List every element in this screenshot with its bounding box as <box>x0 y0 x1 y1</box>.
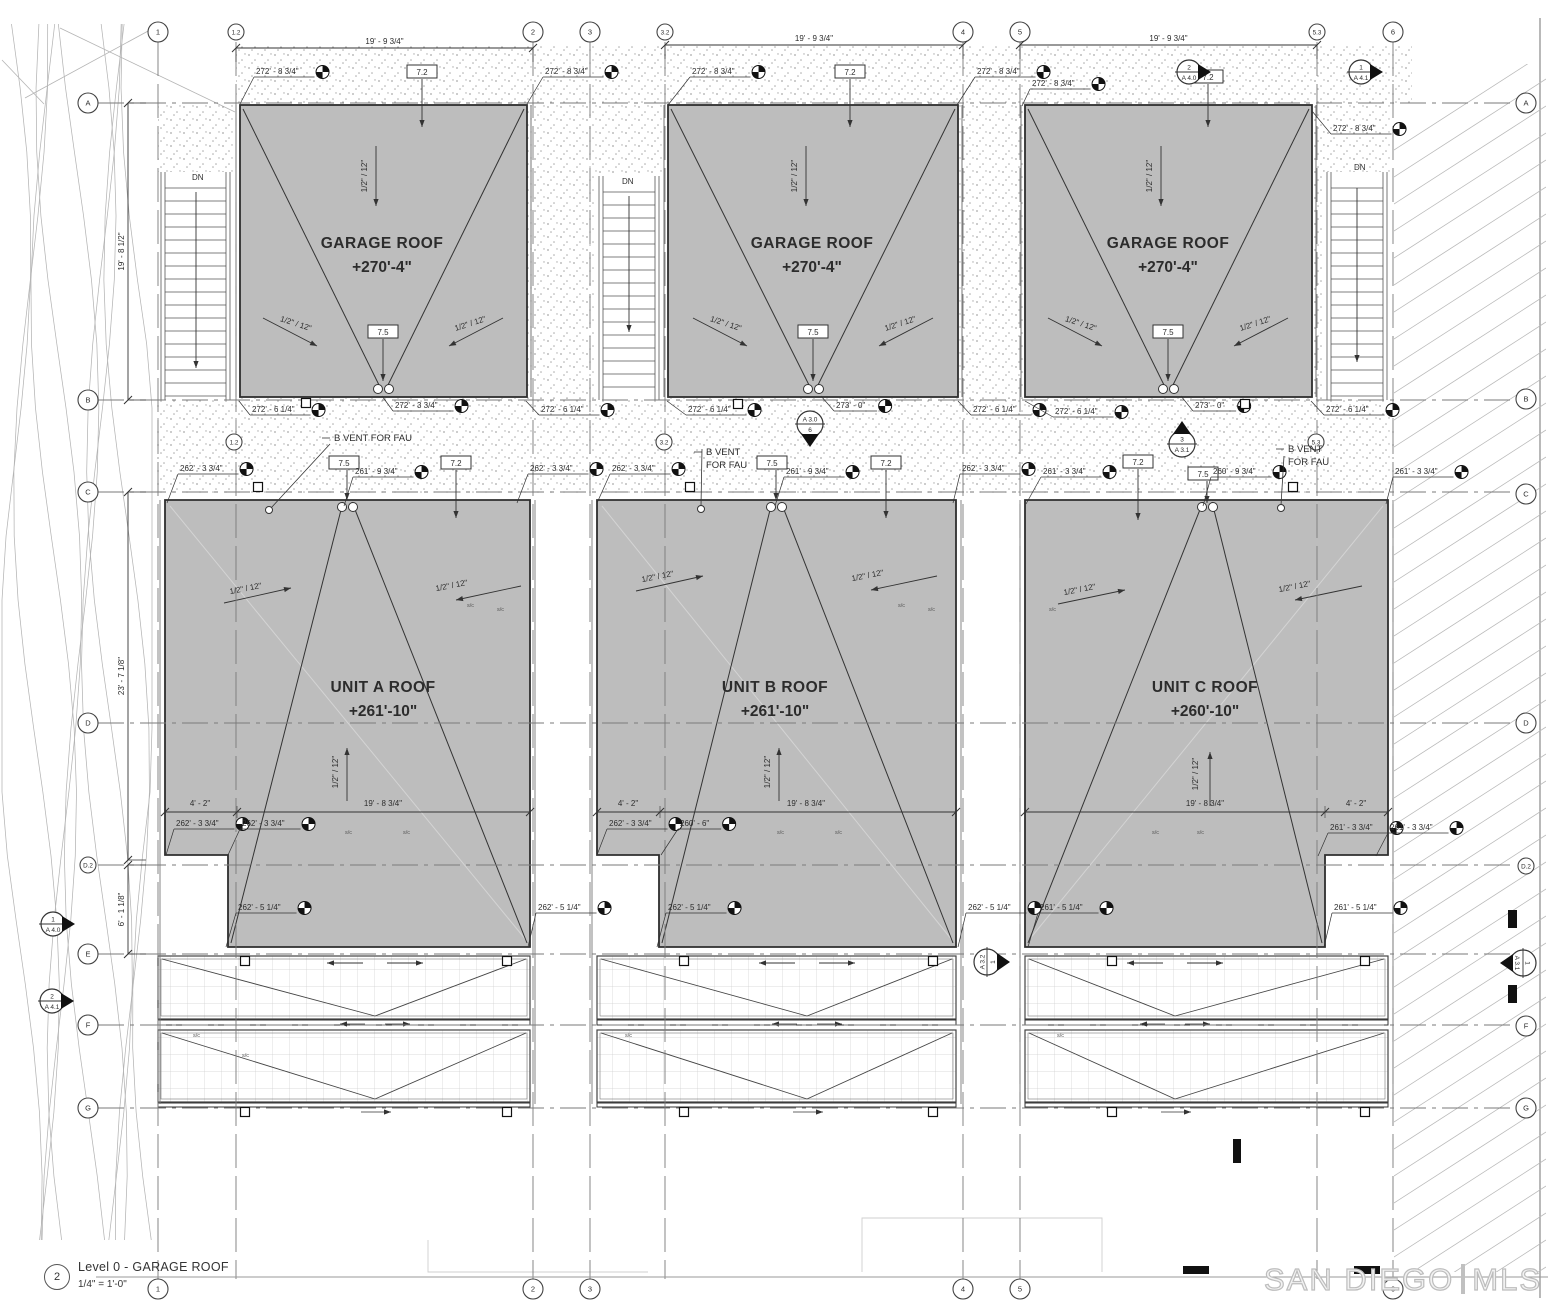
roof-vent <box>767 503 776 512</box>
watermark-right: MLS <box>1472 1262 1542 1297</box>
marker-number: 2 <box>50 994 54 1001</box>
elevation-label: 273' - 0" <box>836 401 865 410</box>
elevation-label: 272' - 3 3/4" <box>395 401 438 410</box>
deck-area <box>1025 956 1388 1019</box>
watermark: SAN DIEGOMLS <box>1264 1262 1542 1298</box>
roof-vent <box>778 503 787 512</box>
roof-box <box>302 399 311 408</box>
elevation-label: 273' - 0" <box>1195 401 1224 410</box>
garage-roof-name: GARAGE ROOF <box>1107 235 1230 252</box>
stipple-area <box>1322 103 1390 172</box>
stipple-area <box>1312 103 1324 400</box>
deck-unit-a <box>158 956 530 1115</box>
stair-dn-label: DN <box>622 177 634 186</box>
line <box>1394 1132 1546 1230</box>
elevation-label: 261' - 9 3/4" <box>355 467 398 476</box>
line <box>1394 565 1546 663</box>
dimension-text: 4' - 2" <box>618 799 639 808</box>
grid-bubble-label: 3 <box>588 1285 592 1294</box>
unit-roof-elevation: +261'-10" <box>349 703 417 720</box>
garage-roof-elevation: +270'-4" <box>1138 259 1198 276</box>
elevation-label: 262' - 5 1/4" <box>968 903 1011 912</box>
arrow-head <box>1184 1109 1191 1114</box>
roof-box <box>1361 1108 1370 1117</box>
grid-bubble-label: 3 <box>588 28 592 37</box>
elevation-label: 262' - 3 3/4" <box>530 464 573 473</box>
stipple-area <box>596 103 662 176</box>
line <box>1394 862 1546 960</box>
keynote-tag: 7.2 <box>880 459 892 468</box>
title-block: 2 Level 0 - GARAGE ROOF 1/4" = 1'-0" <box>44 1260 229 1290</box>
elevation-label: 272' - 8 3/4" <box>1333 124 1376 133</box>
grid-bubble-label: 1.2 <box>232 29 241 36</box>
elevation-label: 272' - 6 1/4" <box>973 405 1016 414</box>
unit-roof-name: UNIT A ROOF <box>330 679 435 696</box>
deck-unit-c <box>1025 956 1388 1115</box>
marker-number: 2 <box>1187 65 1191 72</box>
dimension-text: 19' - 9 3/4" <box>365 37 403 46</box>
elevation-label: 260' - 9 3/4" <box>1213 467 1256 476</box>
roof-box <box>680 957 689 966</box>
stair-dn-label: DN <box>1354 163 1366 172</box>
elevation-label: 262' - 3 3/4" <box>242 819 285 828</box>
dimension-text: 4' - 2" <box>190 799 211 808</box>
marker-number: 3 <box>1180 437 1184 444</box>
line <box>1394 754 1546 852</box>
line <box>1394 430 1546 528</box>
line <box>1394 538 1546 636</box>
dimension-text: 19' - 8 3/4" <box>364 799 402 808</box>
elevation-label: 261' - 3 3/4" <box>1330 823 1373 832</box>
roof-vent <box>338 503 347 512</box>
title-text: Level 0 - GARAGE ROOF 1/4" = 1'-0" <box>78 1260 229 1290</box>
grid-bubble-label: F <box>86 1021 91 1030</box>
marker-arrow <box>62 916 75 932</box>
keynote-tag: 7.2 <box>844 68 856 77</box>
grid-bubble-label: D.2 <box>83 862 93 869</box>
line <box>1394 835 1546 933</box>
line <box>1394 133 1546 231</box>
drawing-number: 2 <box>54 1271 60 1283</box>
line <box>1394 1078 1546 1176</box>
grid-bubble-label: B <box>85 396 90 405</box>
roof-box <box>1289 483 1298 492</box>
contour-line <box>121 24 152 1240</box>
elevation-label: 262' - 5 1/4" <box>538 903 581 912</box>
grid-bubble-label: D <box>85 719 91 728</box>
line <box>1394 268 1546 366</box>
dimension-text: 19' - 9 3/4" <box>1149 34 1187 43</box>
slope-label: 1/2" / 12" <box>763 756 772 789</box>
elevation-label: 272' - 8 3/4" <box>1032 79 1075 88</box>
grid-bubble-label: 3.2 <box>660 439 669 446</box>
arrow-head <box>384 1109 391 1114</box>
grid-bubble-label: 2 <box>531 1285 535 1294</box>
line <box>1394 241 1546 339</box>
marker-sheet: A 4.0 <box>1182 75 1197 82</box>
bvent-pipe <box>1278 505 1285 512</box>
drawing-title: Level 0 - GARAGE ROOF <box>78 1260 229 1276</box>
deck-wall <box>597 1103 956 1107</box>
grid-bubble-label: 6 <box>1391 28 1395 37</box>
sc-label: s/c <box>193 1033 200 1039</box>
marker-sheet: A 4.1 <box>45 1004 60 1011</box>
roof-plan-drawing: DNDNDNGARAGE ROOF+270'-4"1/2" / 12"1/2" … <box>0 0 1548 1300</box>
dimension-text: 4' - 2" <box>1346 799 1367 808</box>
wall-segment <box>1183 1266 1209 1274</box>
dimension-text: 23' - 7 1/8" <box>117 657 126 695</box>
elevation-label: 261' - 3 3/4" <box>1043 467 1086 476</box>
line <box>1394 106 1546 204</box>
elevation-label: 272' - 8 3/4" <box>977 67 1020 76</box>
elevation-label: 272' - 8 3/4" <box>545 67 588 76</box>
dimension-text: 19' - 9 3/4" <box>795 34 833 43</box>
elevation-label: 272' - 6 1/4" <box>1326 405 1369 414</box>
bvent-label: FOR FAU <box>1288 457 1329 468</box>
line <box>1394 727 1546 825</box>
marker-sheet: A 3.1 <box>1175 447 1190 454</box>
sc-label: s/c <box>1197 830 1204 836</box>
roof-box <box>929 1108 938 1117</box>
grid-bubble-label: F <box>1524 1022 1529 1031</box>
bvent-pipe <box>266 507 273 514</box>
keynote-tag: 7.5 <box>377 328 389 337</box>
roof-drain <box>1159 385 1168 394</box>
garage-roof-elevation: +270'-4" <box>782 259 842 276</box>
elevation-label: 272' - 6 1/4" <box>688 405 731 414</box>
keynote-tag: 7.5 <box>766 459 778 468</box>
keynote-tag: 7.5 <box>1162 328 1174 337</box>
grid-bubble-label: 2 <box>531 28 535 37</box>
slope-label: 1/2" / 12" <box>1145 160 1154 193</box>
roof-box <box>734 400 743 409</box>
line <box>1394 997 1546 1095</box>
sc-label: s/c <box>1057 1033 1064 1039</box>
elevation-label: 262' - 3 3/4" <box>612 464 655 473</box>
sc-label: s/c <box>625 1033 632 1039</box>
marker-sheet: A 4.0 <box>46 927 61 934</box>
sc-label: s/c <box>467 603 474 609</box>
sc-label: s/c <box>1049 607 1056 613</box>
stipple-area <box>958 103 1025 400</box>
roof-box <box>1361 957 1370 966</box>
grid-bubble-label: A <box>85 99 90 108</box>
garage-roof-name: GARAGE ROOF <box>321 235 444 252</box>
keynote-tag: 7.2 <box>1132 458 1144 467</box>
drawing-number-bubble: 2 <box>44 1264 70 1290</box>
site-line <box>428 1240 648 1272</box>
elevation-label: 272' - 6 1/4" <box>252 405 295 414</box>
elevation-label: 262' - 3 3/4" <box>609 819 652 828</box>
roof-box <box>1108 1108 1117 1117</box>
garage-roof-elevation: +270'-4" <box>352 259 412 276</box>
sheet: DNDNDNGARAGE ROOF+270'-4"1/2" / 12"1/2" … <box>0 0 1548 1300</box>
deck-area <box>1025 1030 1388 1102</box>
roof-drain <box>1170 385 1179 394</box>
grid-bubble-label: B <box>1523 395 1528 404</box>
bvent-pipe <box>698 506 705 513</box>
bvent-label: FOR FAU <box>706 460 747 471</box>
sc-label: s/c <box>898 603 905 609</box>
grid-bubble-label: G <box>1523 1104 1529 1113</box>
deck-area <box>158 1030 530 1102</box>
watermark-left: SAN DIEGO <box>1264 1262 1454 1297</box>
arrow-head <box>816 1109 823 1114</box>
keynote-tag: 7.2 <box>450 459 462 468</box>
elevation-label: 272' - 8 3/4" <box>256 67 299 76</box>
site-line <box>862 1218 1102 1272</box>
sc-label: s/c <box>345 830 352 836</box>
contour-line <box>36 24 82 1240</box>
marker-number: A 3.0 <box>803 417 818 424</box>
roof-vent <box>349 503 358 512</box>
stipple-area <box>158 103 233 172</box>
roof-drain <box>374 385 383 394</box>
roof-box <box>254 483 263 492</box>
roof-drain <box>804 385 813 394</box>
line <box>1394 1159 1546 1257</box>
contour-line <box>58 24 104 1240</box>
contour-line <box>82 24 128 1240</box>
bvent-label: B VENT <box>706 447 741 458</box>
wall-segment <box>1508 910 1517 928</box>
deck-area <box>597 1030 956 1102</box>
roof-box <box>241 1108 250 1117</box>
stipple-area <box>527 103 596 400</box>
roof-vent <box>1209 503 1218 512</box>
elevation-label: 260' - 6" <box>680 819 709 828</box>
line <box>1394 1105 1546 1203</box>
sc-label: s/c <box>403 830 410 836</box>
dimension-text: 19' - 8 1/2" <box>117 232 126 270</box>
roof-box <box>503 1108 512 1117</box>
elevation-label: 261' - 5 1/4" <box>1334 903 1377 912</box>
roof-vent <box>1198 503 1207 512</box>
unit-roof-name: UNIT B ROOF <box>722 679 828 696</box>
elevation-label: 261' - 5 1/4" <box>1040 903 1083 912</box>
deck-area <box>597 956 956 1019</box>
bvent-label: B VENT FOR FAU <box>334 433 412 444</box>
dimension-text: 6' - 1 1/8" <box>117 892 126 926</box>
wall-segment <box>1508 985 1517 1003</box>
grid-bubble-label: 1.2 <box>230 439 239 446</box>
line <box>1394 187 1546 285</box>
grid-bubble-label: G <box>85 1104 91 1113</box>
roof-drain <box>815 385 824 394</box>
elevation-label: 262' - 3 3/4" <box>962 464 1005 473</box>
marker-arrow <box>1500 954 1513 972</box>
stair-3: DN <box>1323 163 1391 400</box>
dimension-text: 19' - 8 3/4" <box>1186 799 1224 808</box>
contour-line <box>2 60 44 104</box>
roof-box <box>686 483 695 492</box>
garage-roof-1: GARAGE ROOF+270'-4"1/2" / 12"1/2" / 12"1… <box>236 105 531 397</box>
grid-bubble-label: 1 <box>156 28 160 37</box>
line <box>958 913 966 947</box>
elevation-label: 262' - 3 3/4" <box>180 464 223 473</box>
garage-roof-name: GARAGE ROOF <box>751 235 874 252</box>
line <box>1394 214 1546 312</box>
grid-bubble-label: C <box>85 488 91 497</box>
detail-marker: A 3.21 <box>974 947 1010 977</box>
line <box>1394 592 1546 690</box>
roof-box <box>241 957 250 966</box>
contour-line <box>104 24 150 1240</box>
grid-bubble-label: C <box>1523 490 1529 499</box>
roof-box <box>1241 400 1250 409</box>
stair-dn-label: DN <box>192 173 204 182</box>
grid-bubble-label: D <box>1523 719 1529 728</box>
marker-sheet: A 4.1 <box>1354 75 1369 82</box>
grid-bubble-label: E <box>85 950 90 959</box>
watermark-divider <box>1461 1264 1465 1294</box>
elevation-label: 262' - 5 1/4" <box>668 903 711 912</box>
roof-box <box>929 957 938 966</box>
dimension-text: 19' - 8 3/4" <box>787 799 825 808</box>
keynote-tag: 7.2 <box>416 68 428 77</box>
elevation-label: 262' - 3 3/4" <box>176 819 219 828</box>
unit-roof-elevation: +261'-10" <box>741 703 809 720</box>
keynote-tag: 7.5 <box>338 459 350 468</box>
roof-box <box>680 1108 689 1117</box>
sc-label: s/c <box>835 830 842 836</box>
elevation-label: 261' - 3 3/4" <box>1395 467 1438 476</box>
slope-label: 1/2" / 12" <box>1191 758 1200 791</box>
elevation-label: 272' - 6 1/4" <box>541 405 584 414</box>
contour-line <box>87 24 133 1240</box>
line <box>1394 619 1546 717</box>
marker-arrow <box>61 993 74 1009</box>
sc-label: s/c <box>1152 830 1159 836</box>
marker-number: A 3.2 <box>980 954 987 969</box>
grid-bubble-label: 5.3 <box>1313 29 1322 36</box>
roof-drain <box>385 385 394 394</box>
unit-roof-elevation: +260'-10" <box>1171 703 1239 720</box>
slope-label: 1/2" / 12" <box>331 756 340 789</box>
sc-label: s/c <box>928 607 935 613</box>
elevation-label: 262' - 5 1/4" <box>238 903 281 912</box>
grid-bubble-label: 5 <box>1018 28 1022 37</box>
garage-roof-3: GARAGE ROOF+270'-4"1/2" / 12"1/2" / 12"1… <box>1021 105 1316 397</box>
sc-label: s/c <box>497 607 504 613</box>
marker-sheet: 1 <box>990 960 997 964</box>
roof-box <box>1108 957 1117 966</box>
section-marker: 2A 4.1 <box>38 989 74 1013</box>
marker-arrow <box>997 953 1010 971</box>
contour-line <box>31 24 77 1240</box>
grid-bubble-label: 5 <box>1018 1285 1022 1294</box>
contour-line <box>25 30 150 98</box>
marker-sheet: A 3.1 <box>1513 956 1520 971</box>
marker-sheet: 6 <box>808 427 812 434</box>
sc-label: s/c <box>777 830 784 836</box>
elevation-label: 261' - 9 3/4" <box>786 467 829 476</box>
roof-box <box>503 957 512 966</box>
grid-bubble-label: 4 <box>961 1285 965 1294</box>
elevation-label: 272' - 8 3/4" <box>692 67 735 76</box>
unit-roof-name: UNIT C ROOF <box>1152 679 1258 696</box>
slope-label: 1/2" / 12" <box>790 160 799 193</box>
deck-wall <box>158 1103 530 1107</box>
elevation-label: 272' - 6 1/4" <box>1055 407 1098 416</box>
slope-label: 1/2" / 12" <box>360 160 369 193</box>
deck-unit-b <box>597 956 956 1115</box>
detail-marker: 1A 3.1 <box>1500 948 1536 978</box>
grid-bubble-label: 3.2 <box>661 29 670 36</box>
contour-line <box>14 24 59 1240</box>
keynote-tag: 7.5 <box>807 328 819 337</box>
grid-bubble-label: A <box>1523 99 1528 108</box>
line <box>1394 511 1546 609</box>
elevation-label: 261' - 3 3/4" <box>1390 823 1433 832</box>
stair-2: DN <box>595 176 663 400</box>
deck-wall <box>1025 1103 1388 1107</box>
wall-segment <box>1233 1139 1241 1163</box>
marker-number: 1 <box>1359 65 1363 72</box>
sc-label: s/c <box>242 1053 249 1059</box>
line <box>1394 295 1546 393</box>
marker-number: 1 <box>1524 961 1531 965</box>
keynote-tag: 7.5 <box>1197 470 1209 479</box>
grid-bubble-label: D.2 <box>1521 863 1531 870</box>
grid-bubble-label: 4 <box>961 28 965 37</box>
marker-number: 1 <box>51 917 55 924</box>
contour-line <box>2 24 42 1240</box>
drawing-scale: 1/4" = 1'-0" <box>78 1276 229 1290</box>
stair-1: DN <box>157 172 234 400</box>
line <box>1394 160 1546 258</box>
bvent-label: B VENT <box>1288 444 1323 455</box>
deck-area <box>158 956 530 1019</box>
